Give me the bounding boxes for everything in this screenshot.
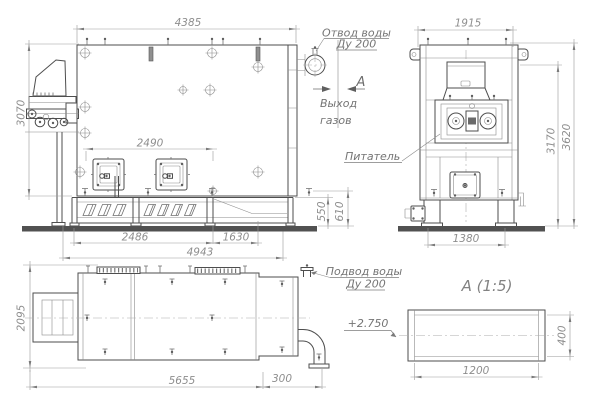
hanger-bar [149, 47, 153, 61]
drawing-canvas: 4385 3070 2490 550 610 2486 1630 4943 От… [0, 0, 600, 400]
dim-4385: 4385 [175, 17, 202, 29]
inspection-door-1 [91, 157, 126, 192]
hanger-bar [256, 47, 260, 61]
feeder-hopper [33, 60, 66, 96]
support-frame [70, 198, 295, 227]
drain-stub [518, 193, 526, 206]
label-water-outlet-2: Ду 200 [336, 38, 377, 51]
feeder-top [33, 293, 78, 342]
dim-1630: 1630 [223, 232, 250, 244]
label-gas-outlet-2: газов [320, 114, 352, 127]
water-inlet-stub [301, 266, 313, 278]
label-water-inlet-2: Ду 200 [345, 278, 386, 291]
label-feeder: Питатель [345, 150, 400, 163]
section-arrowheads [322, 86, 356, 92]
elevation-mark [344, 331, 396, 338]
drain-elbow [298, 330, 329, 369]
dim-550: 550 [316, 201, 328, 221]
dim-610: 610 [334, 201, 346, 221]
front-view [398, 39, 545, 232]
dim-3620: 3620 [561, 123, 573, 150]
engineering-drawing: 4385 3070 2490 550 610 2486 1630 4943 От… [0, 0, 600, 400]
section-letter: А [356, 75, 366, 90]
fuel-feeder [25, 60, 79, 226]
label-water-inlet-1: Подвод воды [326, 265, 403, 278]
fuel-hopper [443, 62, 490, 100]
top-view [25, 266, 330, 369]
grate-bay-1 [83, 205, 126, 216]
feeder-unit [435, 96, 508, 143]
ash-door [405, 206, 425, 221]
feeder-support [57, 132, 62, 223]
dim-4943: 4943 [187, 247, 214, 259]
top-bolts [87, 40, 260, 46]
inspection-door-2 [154, 157, 190, 192]
water-outlet-flange [297, 48, 327, 78]
section-title: А (1:5) [461, 277, 513, 295]
dim-2095: 2095 [16, 304, 28, 331]
dim-300: 300 [272, 373, 292, 385]
dim-2486: 2486 [122, 232, 149, 244]
dim-5655: 5655 [169, 375, 196, 387]
dim-1915: 1915 [455, 18, 482, 30]
grate-bay-2 [144, 205, 196, 216]
elevation-value: +2.750 [348, 317, 389, 330]
dim-3070: 3070 [16, 99, 28, 126]
support-legs [422, 200, 517, 227]
ground-line [22, 226, 317, 232]
dim-1380: 1380 [453, 233, 480, 245]
ash-hopper-slope [214, 199, 287, 214]
dim-2490: 2490 [137, 138, 164, 150]
ground-line-front [398, 226, 545, 232]
dim-1200: 1200 [463, 365, 490, 377]
label-gas-outlet-1: Выход [320, 97, 357, 110]
boiler-body-top [78, 273, 298, 360]
dim-3170: 3170 [546, 127, 558, 154]
side-view [22, 39, 365, 232]
dim-400: 400 [557, 325, 569, 345]
access-door [450, 172, 480, 198]
